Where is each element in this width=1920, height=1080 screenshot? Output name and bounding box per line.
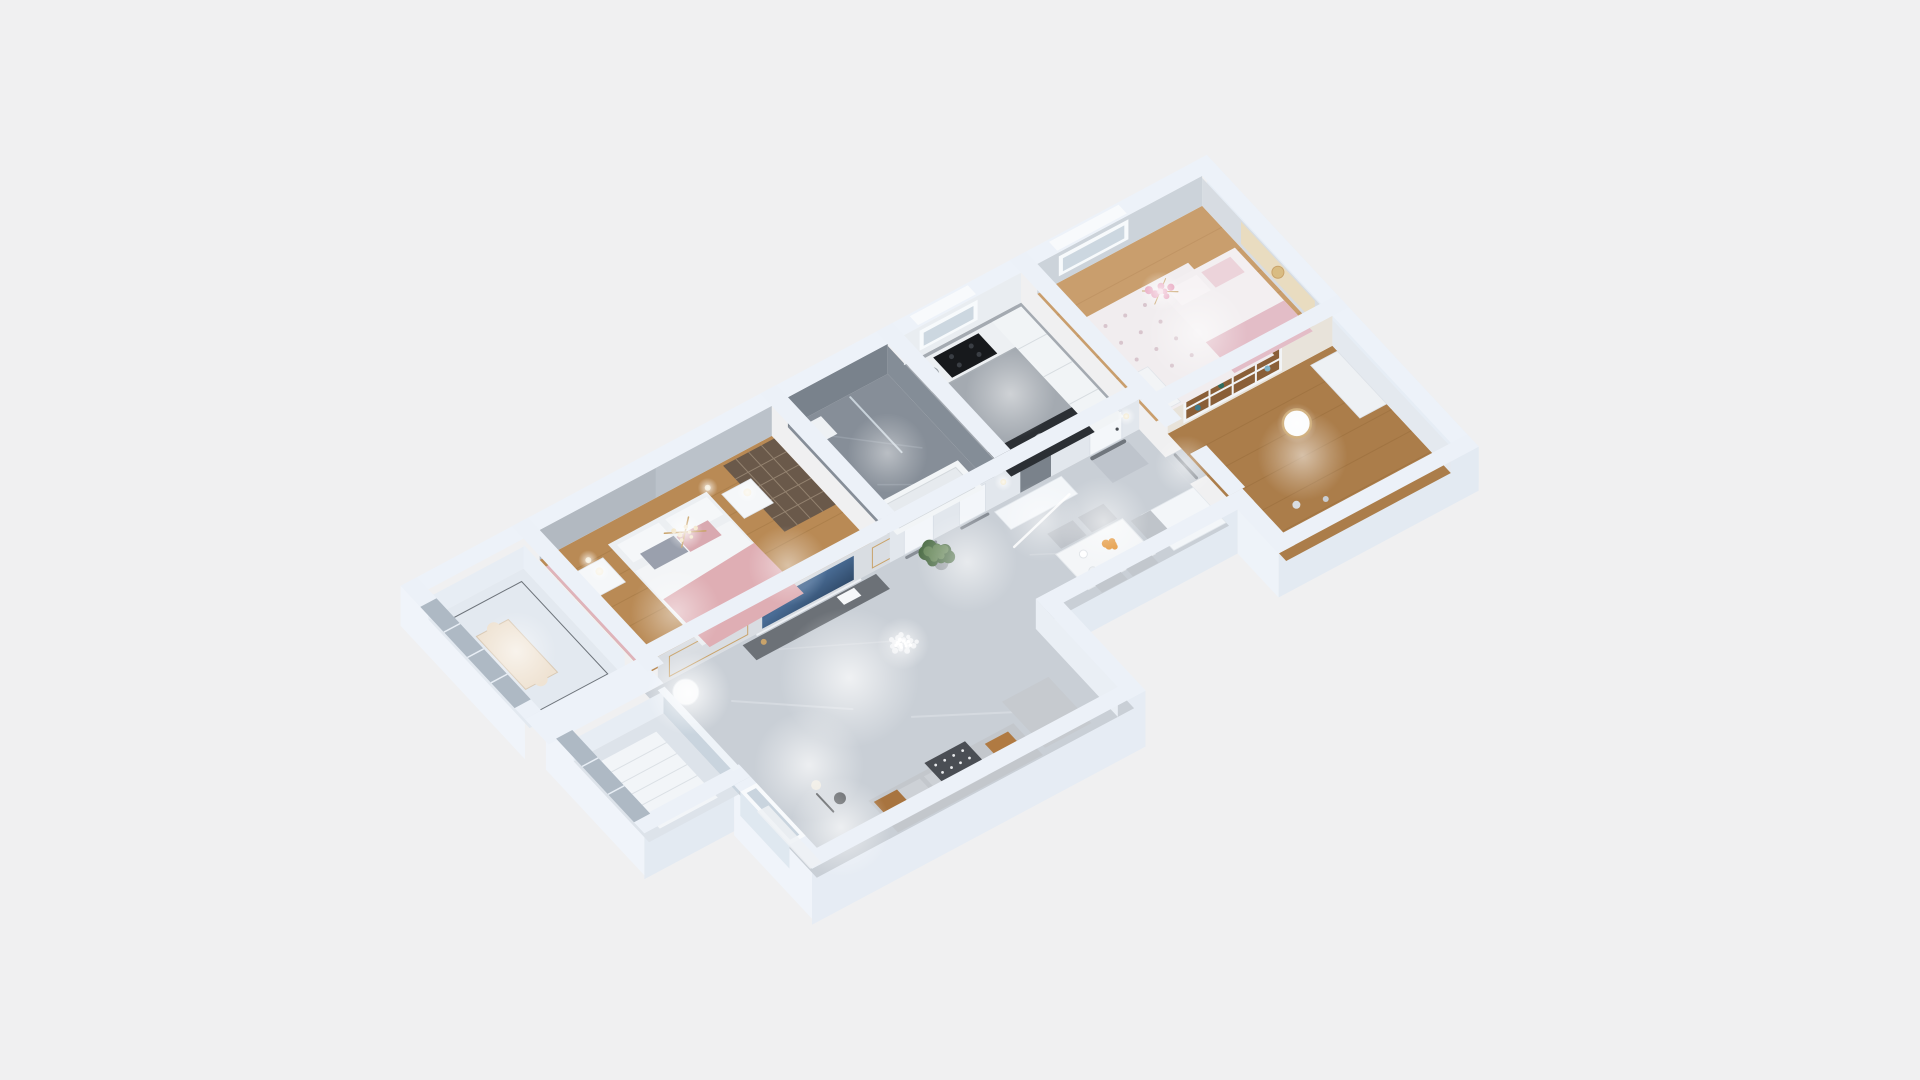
bedroom-pendant-glow xyxy=(698,478,718,498)
kitchen-cooktop-burners xyxy=(949,354,954,359)
bedroom-sputnik-glow xyxy=(667,514,703,550)
render-viewport xyxy=(0,0,1920,1080)
purifier-glow xyxy=(647,651,731,735)
sofa-throw-dots xyxy=(961,749,964,752)
crystal-chandelier-glow xyxy=(877,618,929,670)
hall-sconce-glow xyxy=(994,473,1012,491)
kids-rug-dots xyxy=(1119,341,1123,345)
nightstand-lamp-glow xyxy=(589,561,609,581)
sofa-throw-dots xyxy=(950,766,953,769)
sofa-throw-dots xyxy=(959,761,962,764)
study-decor xyxy=(1292,501,1300,509)
sofa-throw-dots xyxy=(952,754,955,757)
kids-rug-dots xyxy=(1104,324,1108,328)
nightstand-lamp-glow xyxy=(737,482,757,502)
study-shelf-book xyxy=(1195,405,1201,411)
kids-rug-dots xyxy=(1123,314,1127,318)
kids-rug-dots xyxy=(1135,357,1139,361)
study-decor xyxy=(1323,496,1329,502)
kids-headboard-gold-oval xyxy=(1272,266,1284,278)
study-shelf-book xyxy=(1264,366,1270,372)
hall-sconce-glow xyxy=(1117,407,1135,425)
floor-glow xyxy=(1003,482,1083,562)
entry-door-handle xyxy=(1116,428,1119,431)
kitchen-cooktop-burners xyxy=(969,344,974,349)
sofa-throw-dots xyxy=(943,759,946,762)
kitchen-cooktop-burners xyxy=(977,352,982,357)
pink-chandelier-glow xyxy=(1140,271,1180,311)
sofa-throw-dots xyxy=(941,771,944,774)
floor-glow xyxy=(917,512,1017,612)
study-pendant-glow xyxy=(1277,403,1317,443)
floorplan-3d-canvas[interactable] xyxy=(0,0,1920,1080)
sofa-throw-dots xyxy=(968,757,971,760)
tv-console-decor-gold xyxy=(761,639,767,645)
sofa-throw-dots xyxy=(934,764,937,767)
kids-rug-dots xyxy=(1139,330,1143,334)
kitchen-cooktop-burners xyxy=(957,362,962,367)
